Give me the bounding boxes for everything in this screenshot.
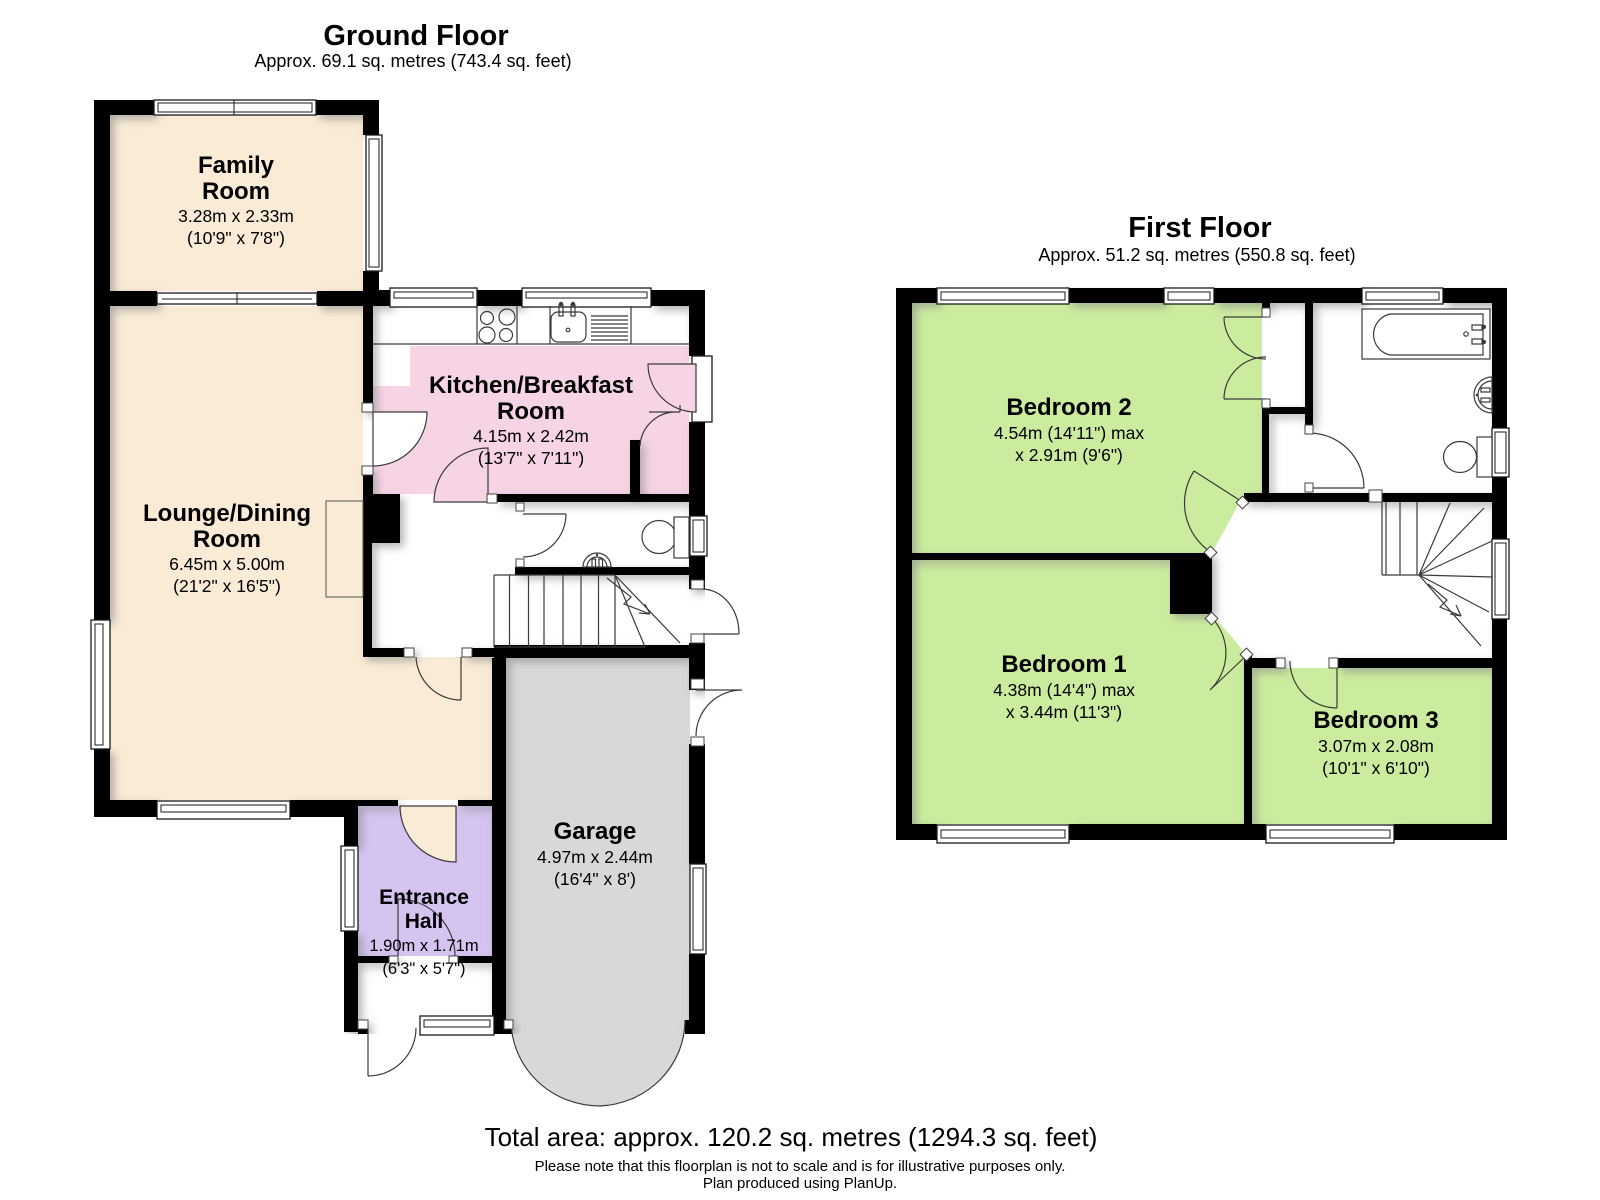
svg-text:Kitchen/Breakfast: Kitchen/Breakfast [429, 372, 633, 399]
svg-text:Family: Family [198, 152, 275, 179]
svg-text:Entrance: Entrance [379, 886, 469, 909]
svg-text:Hall: Hall [405, 910, 444, 933]
svg-text:Plan produced using PlanUp.: Plan produced using PlanUp. [703, 1175, 897, 1192]
svg-text:Room: Room [202, 178, 270, 205]
svg-text:(13'7" x 7'11"): (13'7" x 7'11") [478, 448, 584, 468]
svg-text:(16'4" x 8'): (16'4" x 8') [554, 869, 636, 889]
svg-text:4.97m x 2.44m: 4.97m x 2.44m [537, 847, 653, 867]
svg-text:Approx. 69.1 sq. metres (743.4: Approx. 69.1 sq. metres (743.4 sq. feet) [254, 51, 571, 71]
svg-text:Room: Room [193, 526, 261, 553]
svg-text:1.90m x 1.71m: 1.90m x 1.71m [369, 937, 478, 955]
svg-text:Lounge/Dining: Lounge/Dining [143, 500, 311, 527]
svg-text:4.54m (14'11") max: 4.54m (14'11") max [994, 423, 1145, 443]
svg-text:Bedroom 2: Bedroom 2 [1006, 394, 1131, 421]
svg-text:6.45m x 5.00m: 6.45m x 5.00m [169, 554, 285, 574]
svg-text:4.15m x 2.42m: 4.15m x 2.42m [473, 426, 589, 446]
svg-text:Bedroom 1: Bedroom 1 [1001, 651, 1126, 678]
svg-text:x 2.91m (9'6"): x 2.91m (9'6") [1015, 445, 1123, 465]
svg-text:Total area: approx. 120.2 sq.: Total area: approx. 120.2 sq. metres (12… [485, 1122, 1098, 1152]
svg-text:(10'1" x 6'10"): (10'1" x 6'10") [1322, 758, 1430, 778]
svg-text:Approx. 51.2 sq. metres (550.8: Approx. 51.2 sq. metres (550.8 sq. feet) [1038, 245, 1355, 265]
svg-text:Garage: Garage [554, 818, 637, 845]
svg-text:First Floor: First Floor [1128, 212, 1271, 244]
svg-text:Bedroom 3: Bedroom 3 [1313, 707, 1438, 734]
svg-text:Room: Room [497, 398, 565, 425]
svg-text:Ground Floor: Ground Floor [323, 20, 508, 52]
svg-text:(6'3" x 5'7"): (6'3" x 5'7") [382, 960, 465, 978]
svg-text:Please note that this floorpla: Please note that this floorplan is not t… [535, 1158, 1066, 1175]
svg-text:4.38m (14'4") max: 4.38m (14'4") max [993, 680, 1135, 700]
svg-text:3.07m x 2.08m: 3.07m x 2.08m [1318, 736, 1434, 756]
svg-text:x 3.44m (11'3"): x 3.44m (11'3") [1006, 702, 1122, 722]
svg-text:(10'9" x 7'8"): (10'9" x 7'8") [187, 228, 285, 248]
svg-text:(21'2" x 16'5"): (21'2" x 16'5") [173, 576, 281, 596]
svg-text:3.28m x 2.33m: 3.28m x 2.33m [178, 206, 294, 226]
